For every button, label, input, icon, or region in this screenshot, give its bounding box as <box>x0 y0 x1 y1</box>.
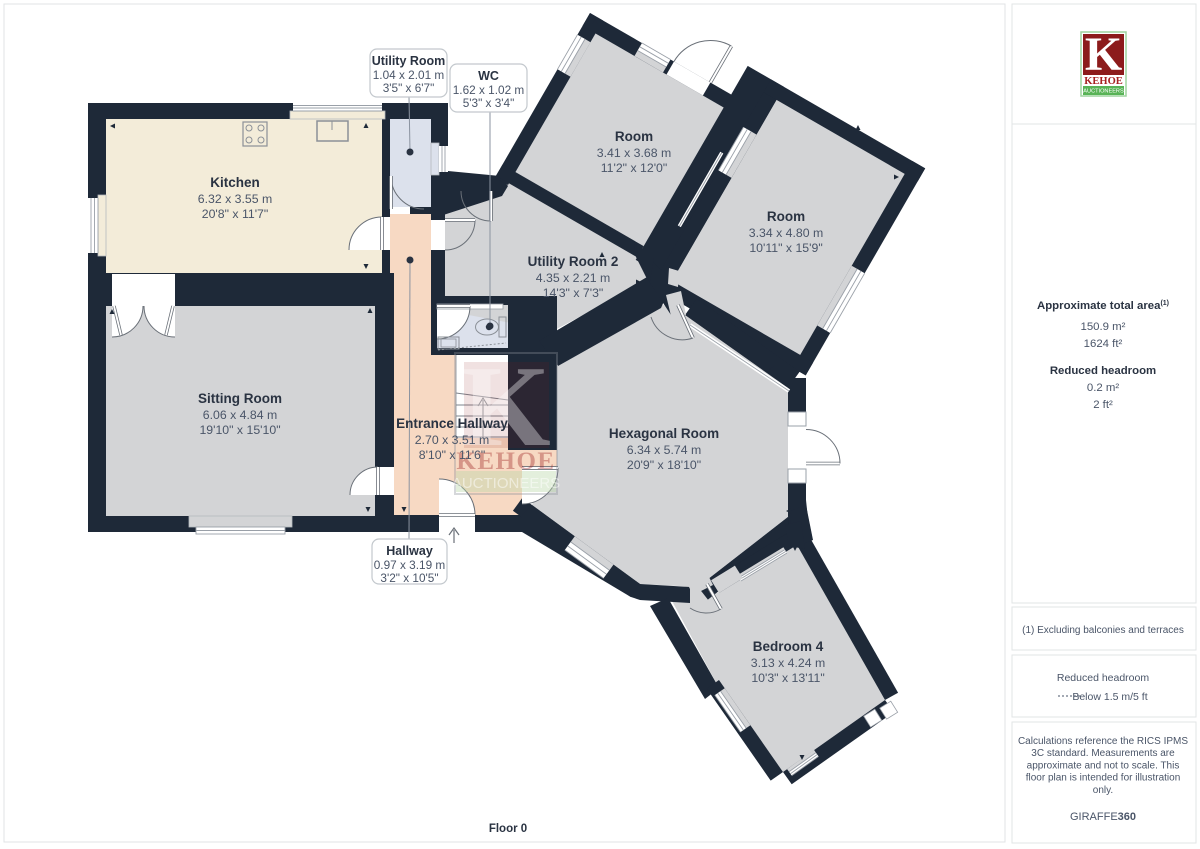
svg-text:6.34 x 5.74 m: 6.34 x 5.74 m <box>627 443 702 457</box>
svg-text:GIRAFFE360: GIRAFFE360 <box>1070 811 1136 823</box>
svg-text:6.32 x 3.55 m: 6.32 x 3.55 m <box>198 192 273 206</box>
svg-text:1624 ft²: 1624 ft² <box>1084 338 1123 350</box>
svg-text:Bedroom 4: Bedroom 4 <box>753 639 824 654</box>
svg-text:1.62 x 1.02 m: 1.62 x 1.02 m <box>453 83 525 97</box>
svg-text:0.97 x 3.19 m: 0.97 x 3.19 m <box>374 558 446 572</box>
svg-text:only.: only. <box>1093 785 1113 796</box>
svg-text:Kitchen: Kitchen <box>210 175 260 190</box>
svg-text:20'9" x 18'10": 20'9" x 18'10" <box>627 458 701 472</box>
svg-text:K: K <box>1085 28 1122 81</box>
svg-text:Sitting Room: Sitting Room <box>198 391 282 406</box>
svg-text:Floor 0: Floor 0 <box>489 823 527 835</box>
svg-text:3.13 x 4.24 m: 3.13 x 4.24 m <box>751 656 826 670</box>
svg-text:Utility Room: Utility Room <box>372 54 446 68</box>
svg-text:10'3" x 13'11": 10'3" x 13'11" <box>751 671 824 685</box>
svg-text:8'10" x 11'6": 8'10" x 11'6" <box>419 448 486 462</box>
svg-text:0.2 m²: 0.2 m² <box>1087 382 1119 394</box>
svg-text:4.35 x 2.21 m: 4.35 x 2.21 m <box>536 271 611 285</box>
svg-text:Reduced headroom: Reduced headroom <box>1057 672 1149 684</box>
svg-text:Approximate total area(1): Approximate total area(1) <box>1037 300 1169 312</box>
svg-text:Entrance Hallway: Entrance Hallway <box>396 416 508 431</box>
svg-text:AUCTIONEERS: AUCTIONEERS <box>1083 89 1124 95</box>
svg-text:20'8" x 11'7": 20'8" x 11'7" <box>202 207 269 221</box>
svg-text:floor plan is intended for ill: floor plan is intended for illustration <box>1026 773 1181 784</box>
svg-text:10'11" x 15'9": 10'11" x 15'9" <box>749 241 822 255</box>
svg-text:Room: Room <box>767 209 805 224</box>
svg-text:Calculations reference the RIC: Calculations reference the RICS IPMS <box>1018 736 1188 747</box>
svg-text:1.04 x 2.01 m: 1.04 x 2.01 m <box>373 68 445 82</box>
svg-text:3.34 x 4.80 m: 3.34 x 4.80 m <box>749 226 824 240</box>
svg-text:3.41 x 3.68 m: 3.41 x 3.68 m <box>597 146 672 160</box>
svg-text:2 ft²: 2 ft² <box>1093 399 1113 411</box>
svg-text:Hallway: Hallway <box>386 544 433 558</box>
svg-text:11'2" x 12'0": 11'2" x 12'0" <box>601 161 668 175</box>
svg-text:approximate and not to scale.: approximate and not to scale. This <box>1027 760 1180 771</box>
svg-text:Below 1.5 m/5 ft: Below 1.5 m/5 ft <box>1072 691 1147 703</box>
svg-text:Reduced headroom: Reduced headroom <box>1050 365 1156 377</box>
svg-text:3C standard. Measurements are: 3C standard. Measurements are <box>1031 748 1175 759</box>
svg-text:Room: Room <box>615 129 653 144</box>
svg-text:5'3" x 3'4": 5'3" x 3'4" <box>463 96 515 110</box>
svg-text:Hexagonal Room: Hexagonal Room <box>609 426 719 441</box>
svg-text:Utility Room 2: Utility Room 2 <box>528 254 619 269</box>
svg-text:WC: WC <box>478 69 499 83</box>
svg-text:19'10" x 15'10": 19'10" x 15'10" <box>199 423 280 437</box>
svg-text:14'3" x 7'3": 14'3" x 7'3" <box>543 286 604 300</box>
svg-text:3'2" x 10'5": 3'2" x 10'5" <box>380 571 438 585</box>
svg-text:6.06 x 4.84 m: 6.06 x 4.84 m <box>203 408 278 422</box>
svg-text:AUCTIONEERS: AUCTIONEERS <box>452 475 560 492</box>
svg-text:3'5" x 6'7": 3'5" x 6'7" <box>383 81 435 95</box>
svg-text:KEHOE: KEHOE <box>1084 76 1123 87</box>
svg-text:150.9 m²: 150.9 m² <box>1081 321 1126 333</box>
svg-text:2.70 x 3.51 m: 2.70 x 3.51 m <box>415 433 490 447</box>
svg-text:(1) Excluding balconies and te: (1) Excluding balconies and terraces <box>1022 625 1184 636</box>
